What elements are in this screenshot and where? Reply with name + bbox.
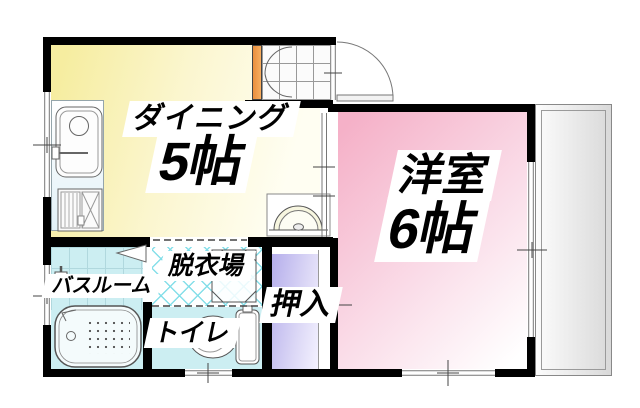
floor-plan: ダイニング 5帖 洋室 6帖 バスルーム 脱衣場 トイレ 押入 [0, 0, 640, 408]
closet-name: 押入 [259, 287, 343, 323]
bathroom-folding-door [117, 245, 146, 262]
entrance-swing-door [337, 42, 393, 101]
western-room-size: 6帖 [374, 197, 491, 262]
dining-room-size: 5帖 [145, 131, 258, 193]
bathroom-name: バスルーム [42, 274, 163, 298]
western-room-name: 洋室 [387, 150, 502, 201]
western-room-label: 洋室 6帖 [333, 150, 542, 262]
closet-label: 押入 [259, 287, 343, 323]
bathroom-label: バスルーム [47, 274, 156, 298]
toilet-name: トイレ [143, 318, 240, 348]
sliding-door-dining-western [313, 113, 335, 237]
toilet-label: トイレ [144, 318, 240, 348]
dining-room-label: ダイニング 5帖 [95, 101, 315, 193]
dressing-room-label: 脱衣場 [150, 251, 264, 281]
dressing-room-name: 脱衣場 [158, 251, 255, 281]
